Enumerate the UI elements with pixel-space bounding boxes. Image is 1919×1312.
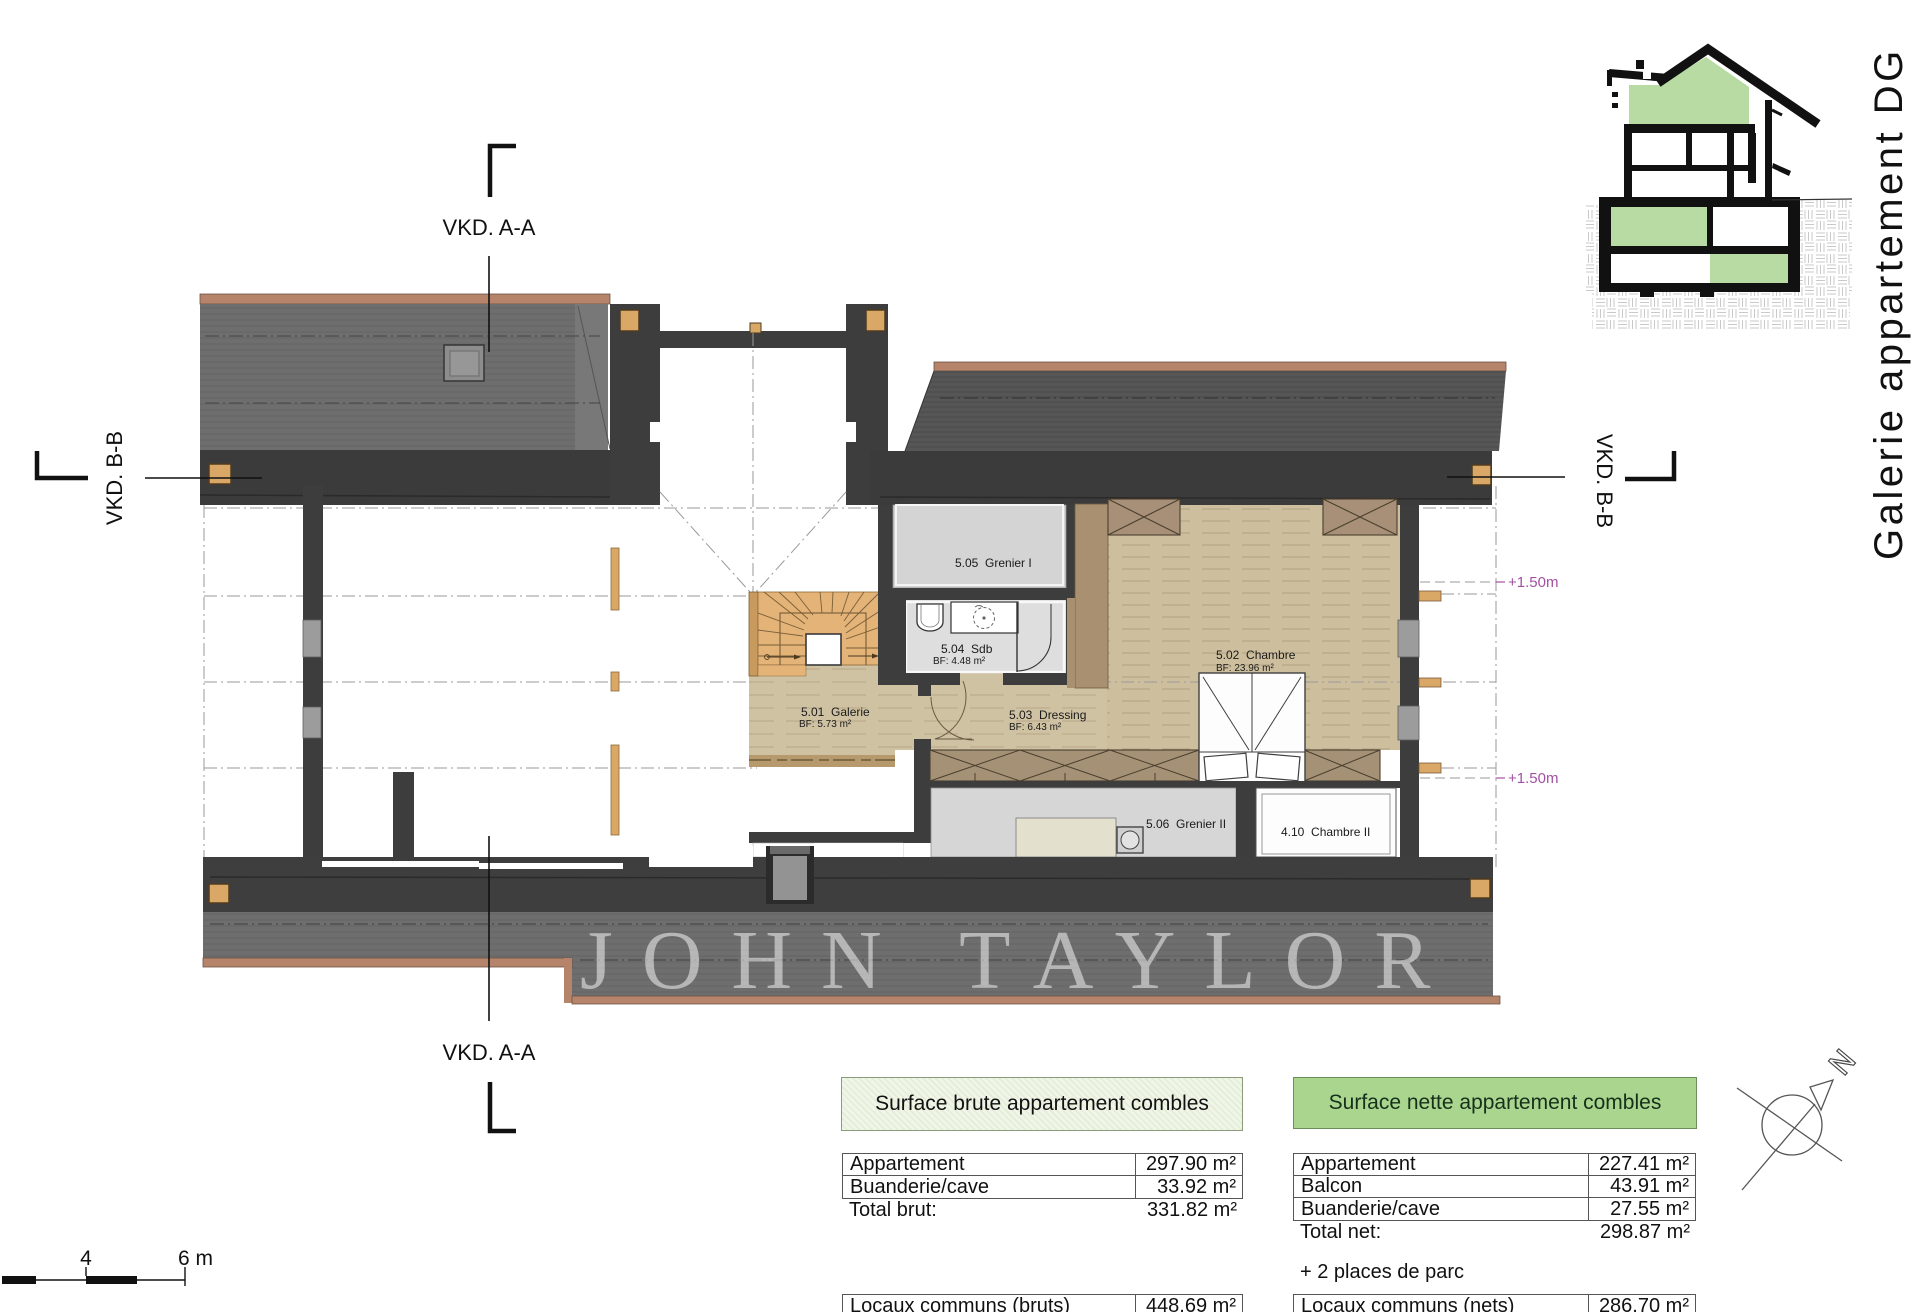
svg-text:5.02 Chambre: 5.02 Chambre (1216, 648, 1296, 662)
svg-text:+1.50m: +1.50m (1508, 574, 1558, 591)
svg-text:5.06 Grenier II: 5.06 Grenier II (1146, 817, 1226, 831)
svg-text:Galerie appartement DG: Galerie appartement DG (1867, 47, 1911, 560)
svg-text:5.01 Galerie: 5.01 Galerie (801, 705, 870, 719)
svg-text:VKD. A-A: VKD. A-A (443, 1040, 536, 1065)
svg-text:5.05 Grenier I: 5.05 Grenier I (955, 556, 1032, 570)
svg-text:JOHN TAYLOR: JOHN TAYLOR (580, 914, 1459, 1007)
svg-text:5.04 Sdb: 5.04 Sdb (941, 642, 993, 656)
svg-text:5.03 Dressing: 5.03 Dressing (1009, 708, 1086, 722)
svg-text:4.10 Chambre II: 4.10 Chambre II (1281, 825, 1370, 839)
svg-text:BF: 5.73 m²: BF: 5.73 m² (799, 719, 852, 730)
svg-text:VKD. A-A: VKD. A-A (443, 215, 536, 240)
svg-text:BF: 23.96 m²: BF: 23.96 m² (1216, 663, 1274, 674)
svg-text:BF: 6.43 m²: BF: 6.43 m² (1009, 722, 1062, 733)
svg-text:+1.50m: +1.50m (1508, 770, 1558, 787)
svg-text:VKD. B-B: VKD. B-B (1592, 434, 1617, 528)
svg-text:6 m: 6 m (178, 1247, 213, 1270)
svg-text:4: 4 (80, 1247, 92, 1270)
svg-text:BF: 4.48 m²: BF: 4.48 m² (933, 656, 986, 667)
svg-text:VKD. B-B: VKD. B-B (102, 431, 127, 525)
